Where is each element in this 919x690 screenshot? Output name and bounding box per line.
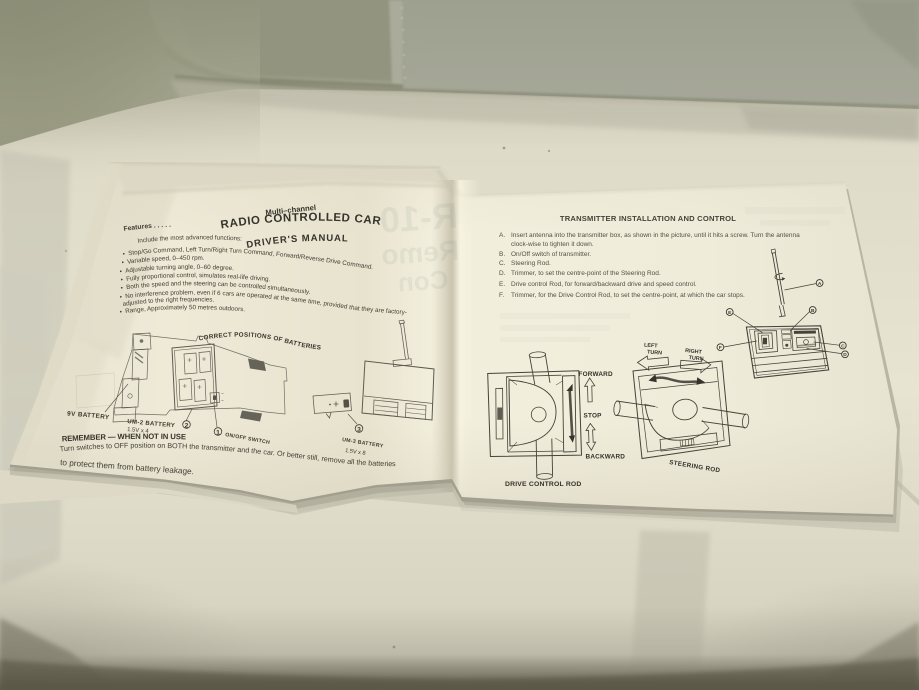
svg-text:3: 3: [357, 426, 361, 433]
svg-text:Steering Rod.: Steering Rod.: [511, 260, 551, 267]
svg-text:Drive control Rod, for forward: Drive control Rod, for forward/backward …: [511, 281, 697, 288]
svg-text:clock-wise to tighten it down.: clock-wise to tighten it down.: [511, 241, 594, 248]
svg-text:B.: B.: [499, 251, 505, 258]
svg-text:C.: C.: [499, 260, 506, 267]
svg-text:2: 2: [185, 422, 189, 429]
svg-text:Trimmer, for the Drive Control: Trimmer, for the Drive Control Rod, to s…: [511, 292, 745, 299]
svg-text:F.: F.: [499, 292, 504, 299]
svg-text:F: F: [719, 345, 722, 351]
svg-text:Trimmer, to set the centre-poi: Trimmer, to set the centre-point of the …: [511, 270, 661, 277]
svg-text:Insert antenna into the transm: Insert antenna into the transmitter box,…: [511, 232, 800, 239]
svg-text:Con: Con: [397, 264, 450, 297]
svg-text:D: D: [843, 352, 847, 358]
svg-text:C: C: [841, 343, 845, 349]
svg-text:TRANSMITTER INSTALLATION AND C: TRANSMITTER INSTALLATION AND CONTROL: [560, 214, 736, 223]
svg-text:R-10: R-10: [378, 194, 459, 240]
svg-text:STOP: STOP: [584, 413, 603, 420]
svg-text:A.: A.: [499, 232, 505, 239]
svg-text:On/Off switch of transmitter.: On/Off switch of transmitter.: [511, 251, 591, 258]
svg-text:DRIVE CONTROL ROD: DRIVE CONTROL ROD: [505, 481, 582, 488]
svg-text:TURN: TURN: [647, 350, 662, 357]
svg-text:LEFT: LEFT: [644, 343, 659, 350]
svg-text:FORWARD: FORWARD: [579, 371, 613, 378]
svg-text:D.: D.: [499, 270, 506, 277]
svg-text:E.: E.: [499, 281, 505, 288]
svg-text:1: 1: [216, 429, 220, 436]
svg-text:A: A: [818, 281, 822, 287]
svg-text:BACKWARD: BACKWARD: [586, 454, 626, 461]
svg-text:B: B: [811, 308, 815, 314]
